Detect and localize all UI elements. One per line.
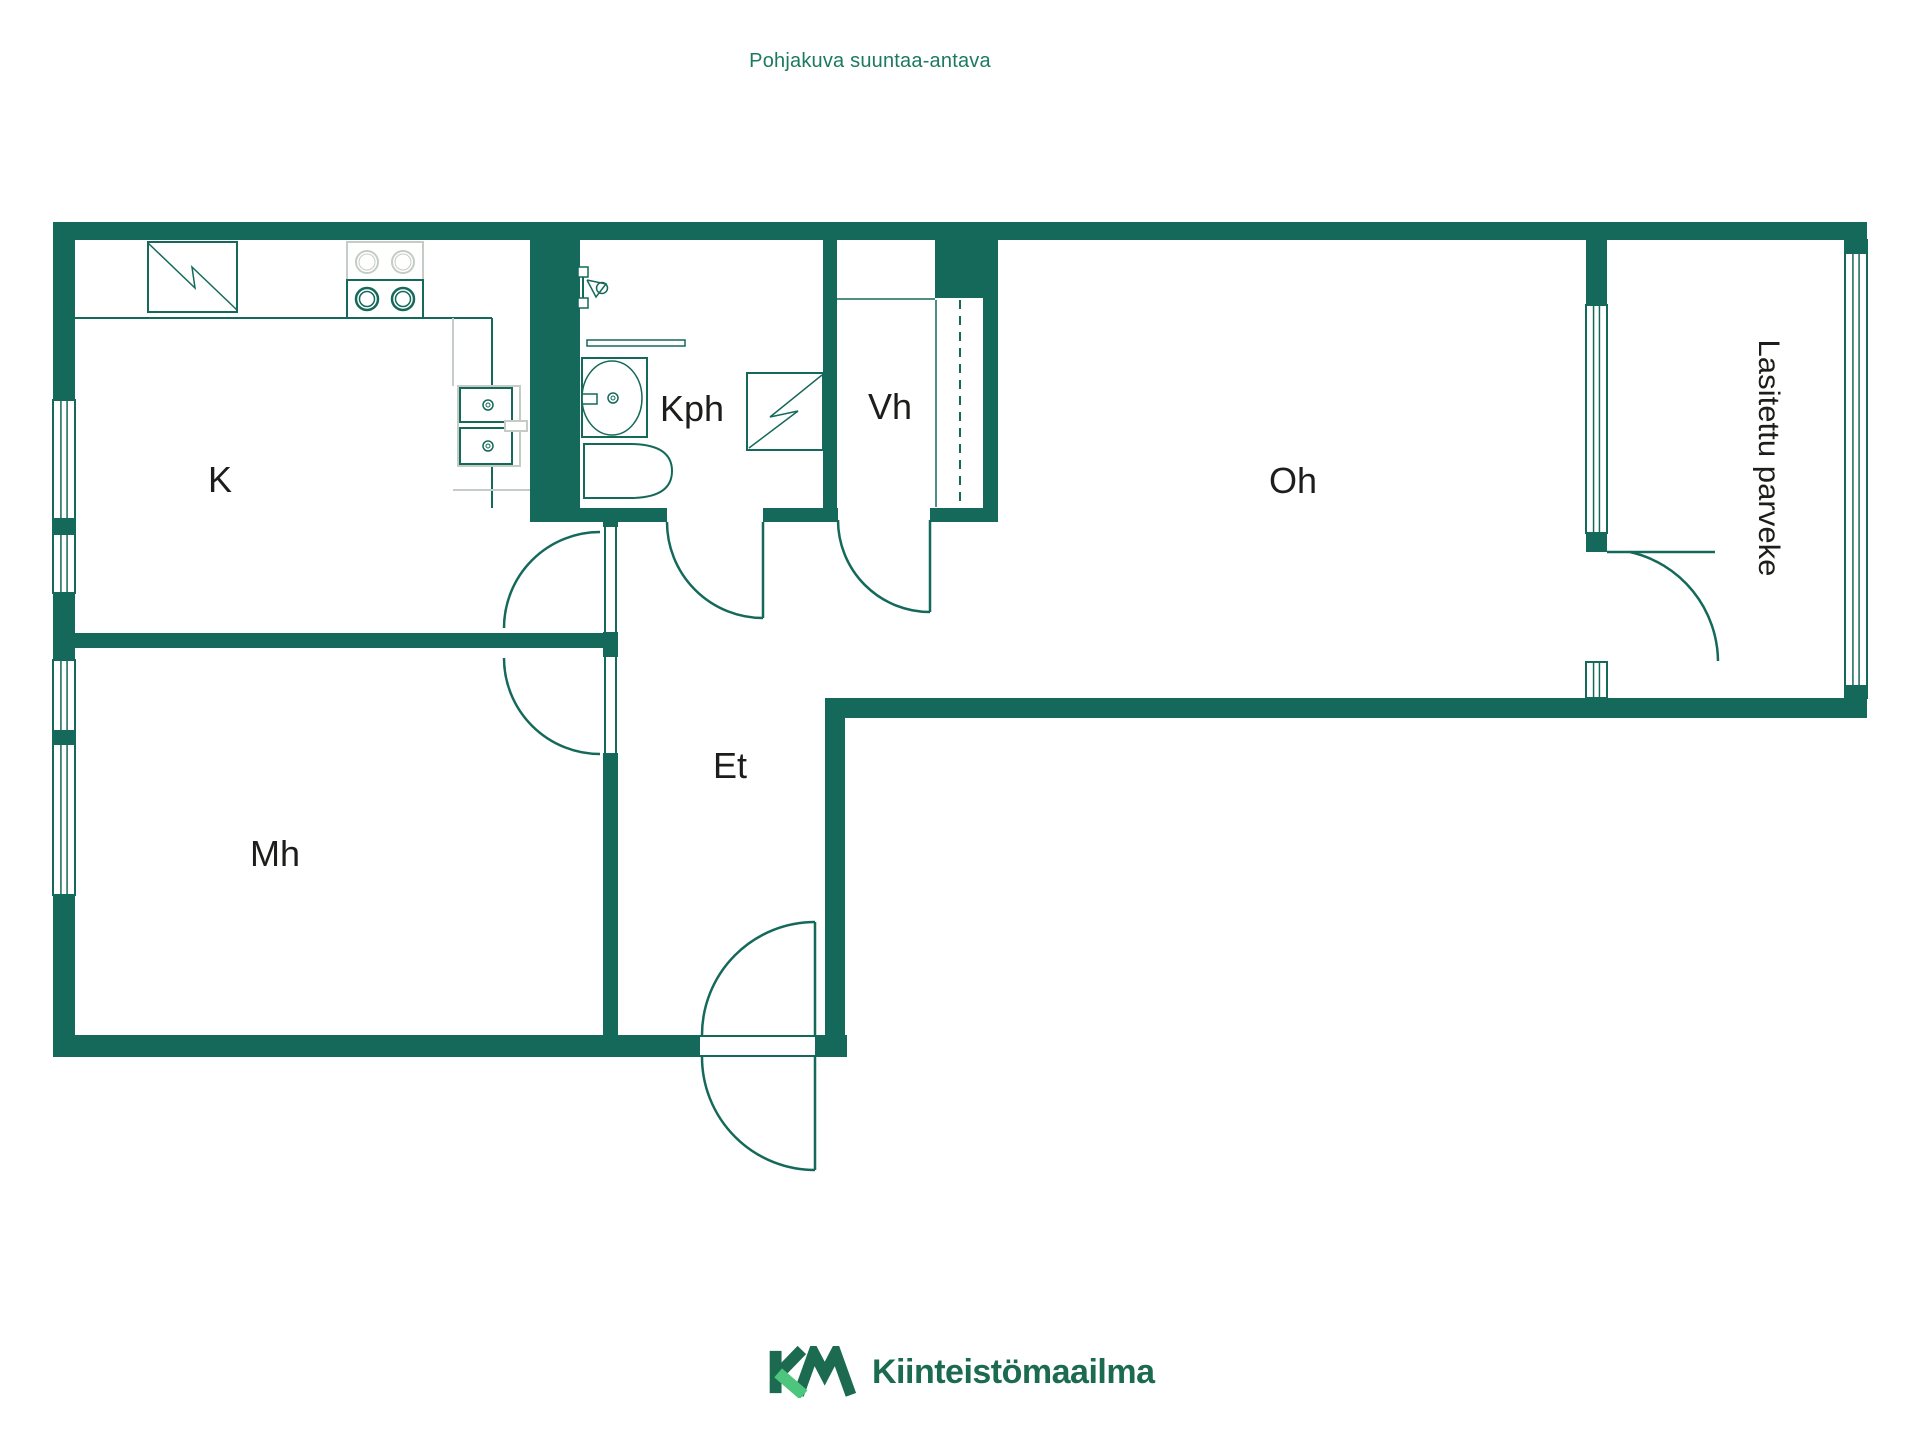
wall-plumbing (530, 240, 580, 522)
wall-et-right (825, 698, 845, 1057)
cap-window-k (53, 518, 75, 535)
towel-rail (587, 340, 685, 346)
km-logo-icon (768, 1346, 856, 1398)
wall-et-left-a (603, 510, 618, 527)
arc-door-vh (838, 520, 930, 612)
wall-left-lower (53, 895, 75, 1057)
brand-name: Kiinteistömaailma (872, 1353, 1154, 1392)
toilet-body (584, 444, 672, 498)
wall-bottom-left (53, 1035, 700, 1057)
wall-balcony-bottom (1586, 698, 1867, 718)
floor-plan-page: Pohjakuva suuntaa-antava KKphVhOhEtMhLas… (0, 0, 1920, 1440)
window-balcony-door-side (1586, 662, 1607, 698)
arc-door-k (504, 532, 600, 628)
room-label-et: Et (713, 745, 747, 786)
wall-oh-bottom (845, 698, 1586, 718)
arc-door-entry-outer (702, 1057, 815, 1170)
room-label-vh: Vh (868, 386, 912, 427)
wall-kph-vh (823, 240, 837, 520)
stove-top-box (347, 242, 423, 280)
room-label-parveke: Lasitettu parveke (1752, 340, 1785, 577)
km-logo-m (798, 1353, 850, 1395)
room-label-mh: Mh (250, 833, 300, 874)
wall-vh-bottom (930, 508, 998, 522)
cap-window-mh (53, 730, 75, 745)
window-balcony-glazing (1845, 240, 1867, 698)
arc-door-kph (667, 522, 763, 618)
wall-vh-top-chunk (935, 240, 998, 298)
floor-plan-drawing: KKphVhOhEtMhLasitettu parveke (0, 0, 1920, 1440)
brand-logo: Kiinteistömaailma (768, 1340, 1154, 1404)
wall-top (53, 222, 1867, 240)
cap-glazing-top (1845, 240, 1867, 254)
fridge-box (148, 242, 237, 312)
room-label-kph: Kph (660, 388, 724, 429)
wall-et-left-c (603, 753, 618, 1035)
window-k (53, 400, 75, 593)
window-mh (53, 660, 75, 895)
arc-door-entry-inner (702, 922, 815, 1035)
wall-left-upper (53, 222, 75, 400)
arc-door-balcony (1630, 552, 1718, 661)
stove-bottom-box (347, 280, 423, 318)
wall-kph-bottom-b (763, 508, 838, 522)
washing-machine (747, 373, 823, 450)
sink-faucet (505, 421, 527, 431)
arc-door-mh (504, 658, 600, 754)
window-oh-balcony (1586, 305, 1607, 533)
shower-bracket-top (578, 267, 588, 277)
wall-k-mh (75, 633, 603, 648)
wall-kph-bottom-a (580, 508, 667, 522)
room-label-k: K (208, 459, 232, 500)
washbasin-tap (582, 394, 597, 404)
wall-et-left-b (603, 632, 618, 657)
wall-vh-right (983, 298, 998, 520)
wall-balcony-left-upper (1586, 240, 1607, 310)
wall-left-mid (53, 593, 75, 660)
room-label-oh: Oh (1269, 460, 1317, 501)
shower-bracket-bottom (578, 298, 588, 308)
cap-glazing-bottom (1845, 685, 1867, 698)
